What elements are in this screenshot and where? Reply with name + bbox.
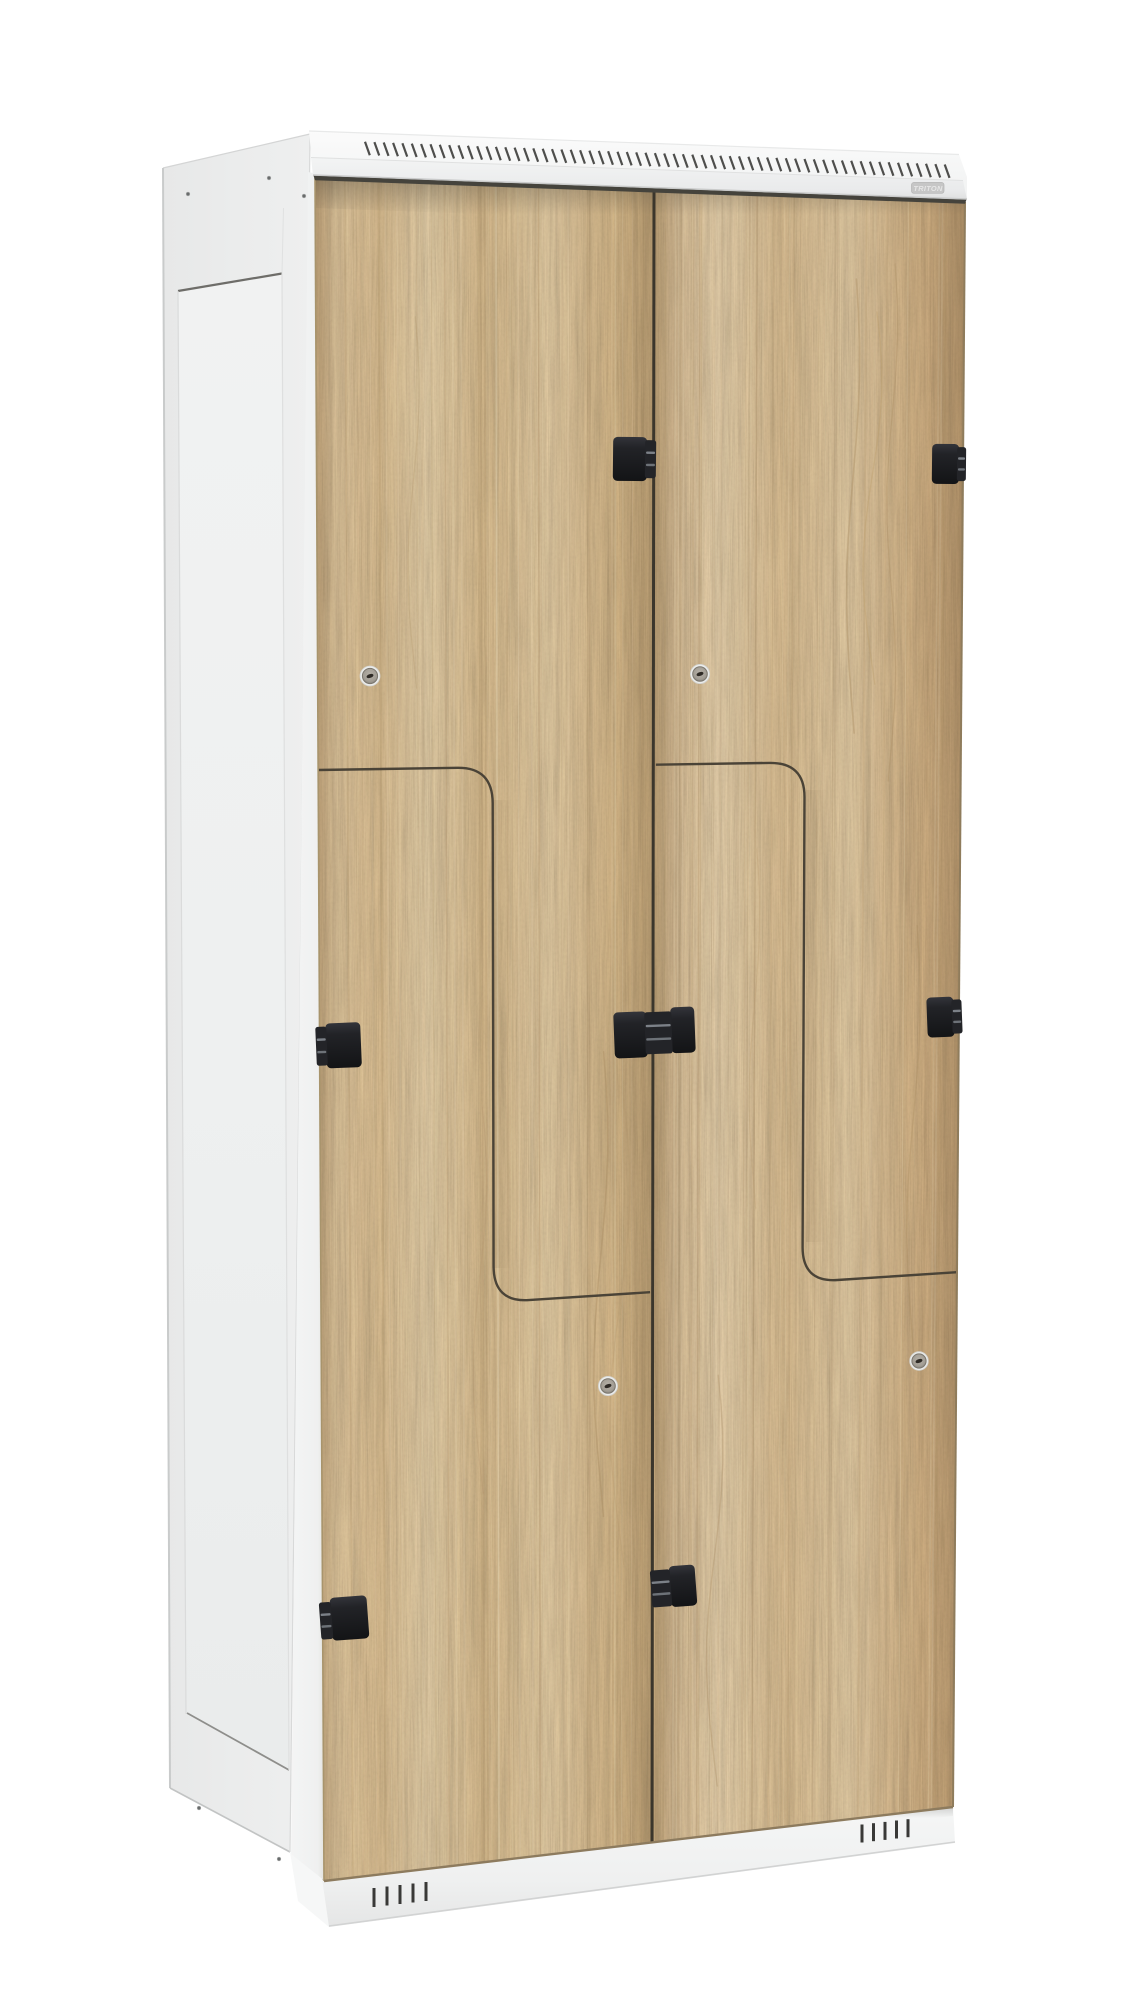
- svg-text:TRITON: TRITON: [913, 184, 943, 193]
